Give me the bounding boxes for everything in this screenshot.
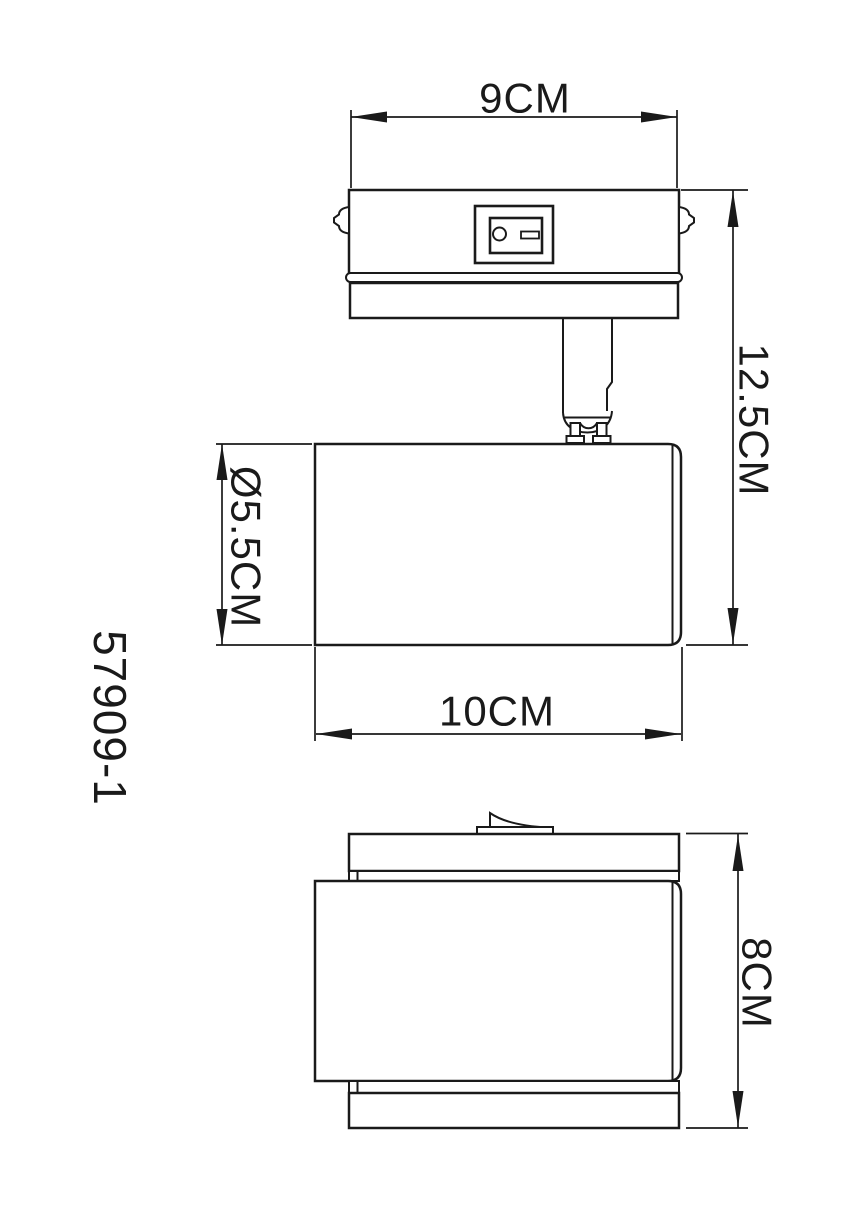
arrowhead-down [728,608,739,644]
canopy-plate [350,283,678,318]
front-view [216,110,748,741]
socket-dome [580,423,597,428]
side-view [315,813,748,1128]
gu10-pin-right [597,423,607,437]
gu10-pin-right-foot [593,436,611,443]
rim-strip-bottom [349,1081,679,1093]
bracket-side-bottom [349,1093,679,1128]
label-body-height: 8CM [734,937,781,1029]
spotlight-dimension-drawing: 9CM 12.5CM Ø5.5CM 10CM 8CM 57909-1 [0,0,865,1223]
lamp-head-cylinder [315,444,681,645]
switch-lever [490,813,549,828]
bracket-side-top [349,834,679,871]
label-bracket-width: 9CM [479,75,571,122]
arrowhead-up [733,835,744,871]
arrowhead-right [645,729,681,740]
technical-drawing-page: 9CM 12.5CM Ø5.5CM 10CM 8CM 57909-1 [0,0,865,1223]
rim-strip-top [349,871,679,881]
gu10-pin-left-foot [567,436,585,443]
gu10-socket [563,319,612,443]
switch-body [490,218,542,253]
socket-right-edge [607,319,612,411]
arrowhead-right [641,112,677,123]
label-overall-height: 12.5CM [731,343,778,496]
model-number: 57909-1 [84,630,136,806]
mounting-screw-left [334,207,349,234]
bracket-rim [346,273,682,282]
power-switch [475,206,553,263]
arrowhead-left [351,112,387,123]
arrowhead-down [733,1091,744,1127]
lamp-head-cylinder-side [315,881,681,1081]
label-head-length: 10CM [439,688,555,735]
label-head-diameter: Ø5.5CM [223,466,270,628]
dimension-bracket-width [351,110,677,188]
arrowhead-up [728,191,739,227]
gu10-pin-left [571,423,581,437]
mounting-screw-right [679,207,694,234]
arrowhead-left [316,729,352,740]
